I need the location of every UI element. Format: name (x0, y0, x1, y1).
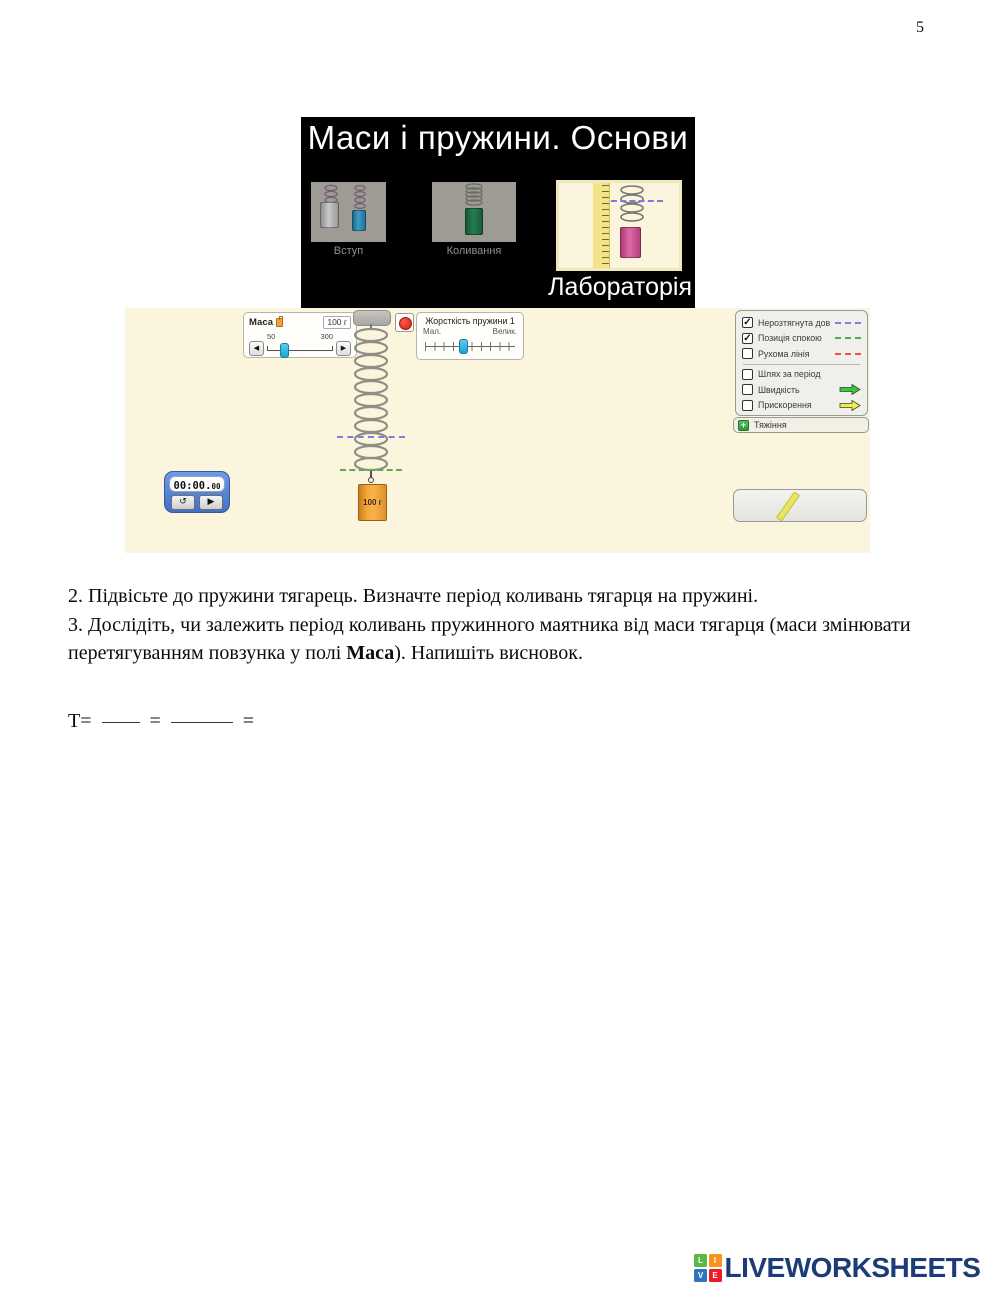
logo-cell-l: L (694, 1254, 707, 1267)
stopwatch-reset-button[interactable]: ↺ (171, 495, 195, 510)
gravity-label: Тяжіння (754, 420, 787, 430)
tab-intro-label[interactable]: Вступ (311, 245, 386, 257)
formula-t: Т= (68, 710, 92, 732)
bold-mass-word: Маса (346, 642, 394, 664)
stiffness-title: Жорсткість пружини 1 (423, 316, 517, 326)
mass-slider-tick (332, 346, 333, 351)
instruction-item-2: 2. Підвісьте до пружини тягарець. Визнач… (68, 582, 943, 611)
tab-intro[interactable] (311, 182, 386, 242)
sim-title: Маси і пружини. Основи (301, 119, 695, 157)
logo-cell-i: I (709, 1254, 722, 1267)
green-arrow-icon (839, 384, 861, 395)
stiffness-slider-thumb[interactable] (459, 339, 468, 354)
tab-oscillation-label[interactable]: Коливання (432, 245, 516, 257)
liveworksheets-logo-icon: L I V E (694, 1254, 722, 1282)
option-velocity[interactable]: Швидкість (742, 382, 861, 398)
instruction-item-3: 3. Дослідіть, чи залежить період коливан… (68, 611, 943, 668)
option-movable-line[interactable]: Рухома лінія (742, 346, 861, 362)
mini-spring-icon (617, 185, 647, 229)
liveworksheets-logo-text: LIVEWORKSHEETS (725, 1252, 981, 1284)
ruler-icon (776, 491, 800, 521)
worksheet-page: 5 Маси і пружини. Основи Вступ (0, 0, 1000, 1291)
mass-slider-min: 50 (267, 332, 275, 341)
formula-eq1: = (150, 710, 161, 732)
page-number: 5 (916, 19, 924, 37)
mass-slider-track[interactable] (267, 350, 333, 351)
tab-lab[interactable] (556, 180, 682, 271)
option-period-trace[interactable]: Шлях за період (742, 367, 861, 383)
yellow-arrow-icon (839, 400, 861, 411)
logo-cell-v: V (694, 1269, 707, 1282)
stop-red-button[interactable] (395, 313, 414, 332)
mass-slider-tick (267, 346, 268, 351)
weight-icon (276, 318, 283, 327)
expand-plus-icon[interactable]: + (738, 420, 749, 431)
mass-label: Маса (249, 317, 273, 328)
tab-oscillation[interactable] (432, 182, 516, 242)
checkbox[interactable]: ✓ (742, 333, 753, 344)
spring-stiffness-panel: Жорсткість пружини 1 Мал. Велик. (416, 312, 524, 360)
stopwatch[interactable]: 00:00.00 ↺ ▶ (164, 471, 230, 513)
option-natural-length[interactable]: ✓ Нерозтягнута довжина (742, 315, 861, 331)
option-acceleration[interactable]: Прискорення (742, 398, 861, 414)
red-dash-indicator (835, 353, 861, 355)
stopwatch-display: 00:00.00 (169, 476, 225, 492)
green-mass-icon (465, 208, 483, 235)
liveworksheets-logo: L I V E LIVEWORKSHEETS (694, 1252, 980, 1284)
gravity-expander[interactable]: + Тяжіння (733, 417, 869, 433)
mini-spring-icon (353, 184, 367, 210)
green-dash-indicator (835, 337, 861, 339)
checkbox[interactable] (742, 400, 753, 411)
mini-ruler-icon (593, 183, 610, 268)
weight-mass-label: 100 г (363, 498, 382, 507)
stiffness-min-label: Мал. (423, 327, 441, 336)
mass-panel: Маса 100 г ◀ 50 300 ▶ (243, 312, 357, 358)
mass-value: 100 г (323, 316, 351, 329)
hanging-weight[interactable]: 100 г (358, 484, 387, 521)
blue-dash-indicator (835, 322, 861, 324)
options-panel: ✓ Нерозтягнута довжина ✓ Позиція спокою … (735, 310, 868, 416)
gray-mass-icon (320, 202, 339, 228)
stiffness-slider-track[interactable] (425, 346, 515, 347)
natural-length-line (337, 436, 405, 438)
formula-blank[interactable] (102, 722, 140, 723)
checkbox[interactable] (742, 384, 753, 395)
mini-dashed-line (611, 200, 663, 202)
mini-spring-icon (323, 184, 339, 204)
instructions-text: 2. Підвісьте до пружини тягарець. Визнач… (68, 582, 943, 668)
spring[interactable] (349, 324, 393, 472)
checkbox[interactable] (742, 348, 753, 359)
weight-hook (366, 471, 375, 485)
ruler-toolbox-button[interactable] (733, 489, 867, 522)
mass-slider-thumb[interactable] (280, 343, 289, 358)
mass-slider-max: 300 (320, 332, 333, 341)
mass-decrement-button[interactable]: ◀ (249, 341, 264, 356)
mini-spring-icon (463, 183, 485, 207)
logo-cell-e: E (709, 1269, 722, 1282)
checkbox[interactable] (742, 369, 753, 380)
checkbox[interactable]: ✓ (742, 317, 753, 328)
options-divider (743, 364, 860, 365)
formula-blank[interactable] (171, 722, 233, 723)
stopwatch-play-button[interactable]: ▶ (199, 495, 223, 510)
blue-mass-icon (352, 210, 366, 231)
tab-lab-label[interactable]: Лабораторія (301, 273, 692, 302)
option-rest-position[interactable]: ✓ Позиція спокою (742, 331, 861, 347)
pink-mass-icon (620, 227, 641, 258)
mass-slider[interactable]: 50 300 (267, 341, 333, 356)
formula-eq2: = (243, 710, 254, 732)
stiffness-slider[interactable] (423, 338, 517, 354)
sim-canvas: Маса 100 г ◀ 50 300 ▶ Жорс (125, 308, 870, 553)
formula-line: Т=== (68, 710, 254, 733)
sim-header: Маси і пружини. Основи Вступ (301, 117, 695, 308)
stiffness-max-label: Велик. (493, 327, 517, 336)
